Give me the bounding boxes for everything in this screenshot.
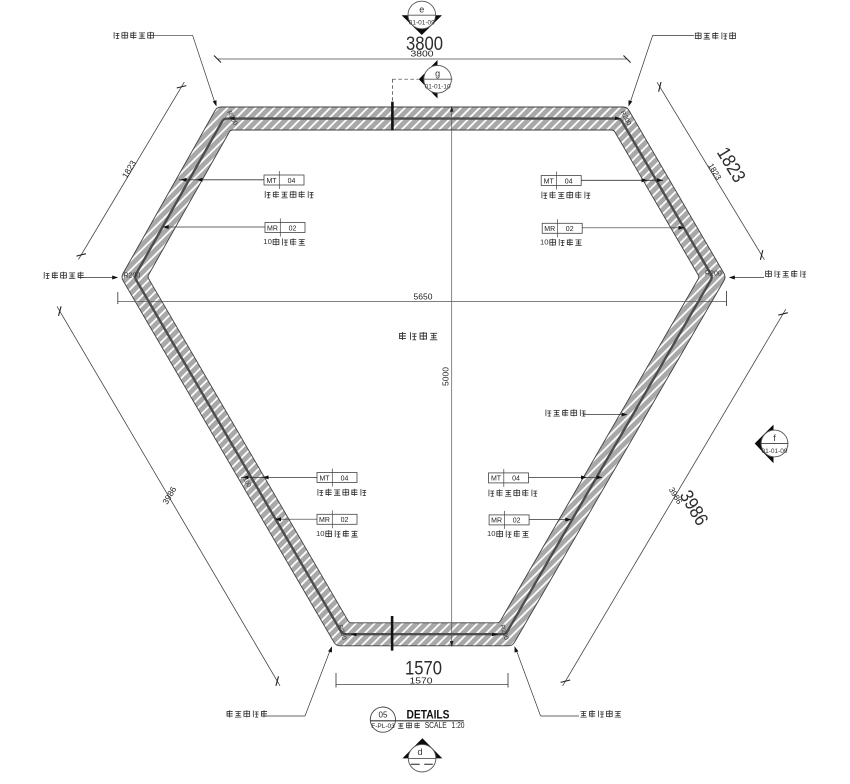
svg-text:e: e [419, 5, 424, 15]
svg-text:10: 10 [263, 237, 272, 246]
svg-text:MR: MR [267, 225, 278, 232]
svg-text:04: 04 [341, 475, 349, 482]
svg-text:01-01-09: 01-01-09 [409, 20, 436, 27]
svg-text:MR: MR [319, 517, 330, 524]
svg-text:01-01-10: 01-01-10 [425, 84, 452, 91]
svg-text:MT: MT [319, 475, 330, 482]
svg-text:MR: MR [491, 518, 502, 525]
svg-text:10: 10 [540, 237, 549, 246]
svg-text:MR: MR [544, 226, 555, 233]
svg-text:3800: 3800 [411, 50, 435, 59]
svg-text:05: 05 [379, 711, 388, 720]
svg-text:04: 04 [565, 178, 573, 185]
svg-text:02: 02 [341, 517, 349, 524]
svg-text:DETAILS: DETAILS [407, 707, 450, 721]
svg-text:04: 04 [512, 476, 520, 483]
svg-text:R200: R200 [705, 271, 722, 278]
svg-text:1:20: 1:20 [452, 721, 465, 730]
svg-text:10: 10 [487, 529, 496, 538]
svg-text:02: 02 [289, 225, 297, 232]
svg-text:MT: MT [491, 476, 502, 483]
svg-text:5650: 5650 [414, 292, 433, 302]
svg-text:F-PL-03: F-PL-03 [371, 723, 395, 730]
svg-text:04: 04 [288, 178, 296, 185]
svg-text:10: 10 [316, 529, 325, 538]
svg-text:MT: MT [266, 178, 277, 185]
svg-text:02: 02 [513, 518, 521, 525]
svg-text:d: d [417, 747, 422, 757]
svg-text:01-01-09: 01-01-09 [762, 448, 789, 455]
svg-text:02: 02 [566, 226, 574, 233]
svg-text:5000: 5000 [441, 367, 451, 386]
svg-text:MT: MT [544, 178, 555, 185]
svg-text:1570: 1570 [410, 677, 434, 686]
svg-text:g: g [435, 69, 440, 79]
svg-text:SCALE: SCALE [425, 721, 447, 730]
svg-text:R200: R200 [124, 273, 141, 280]
